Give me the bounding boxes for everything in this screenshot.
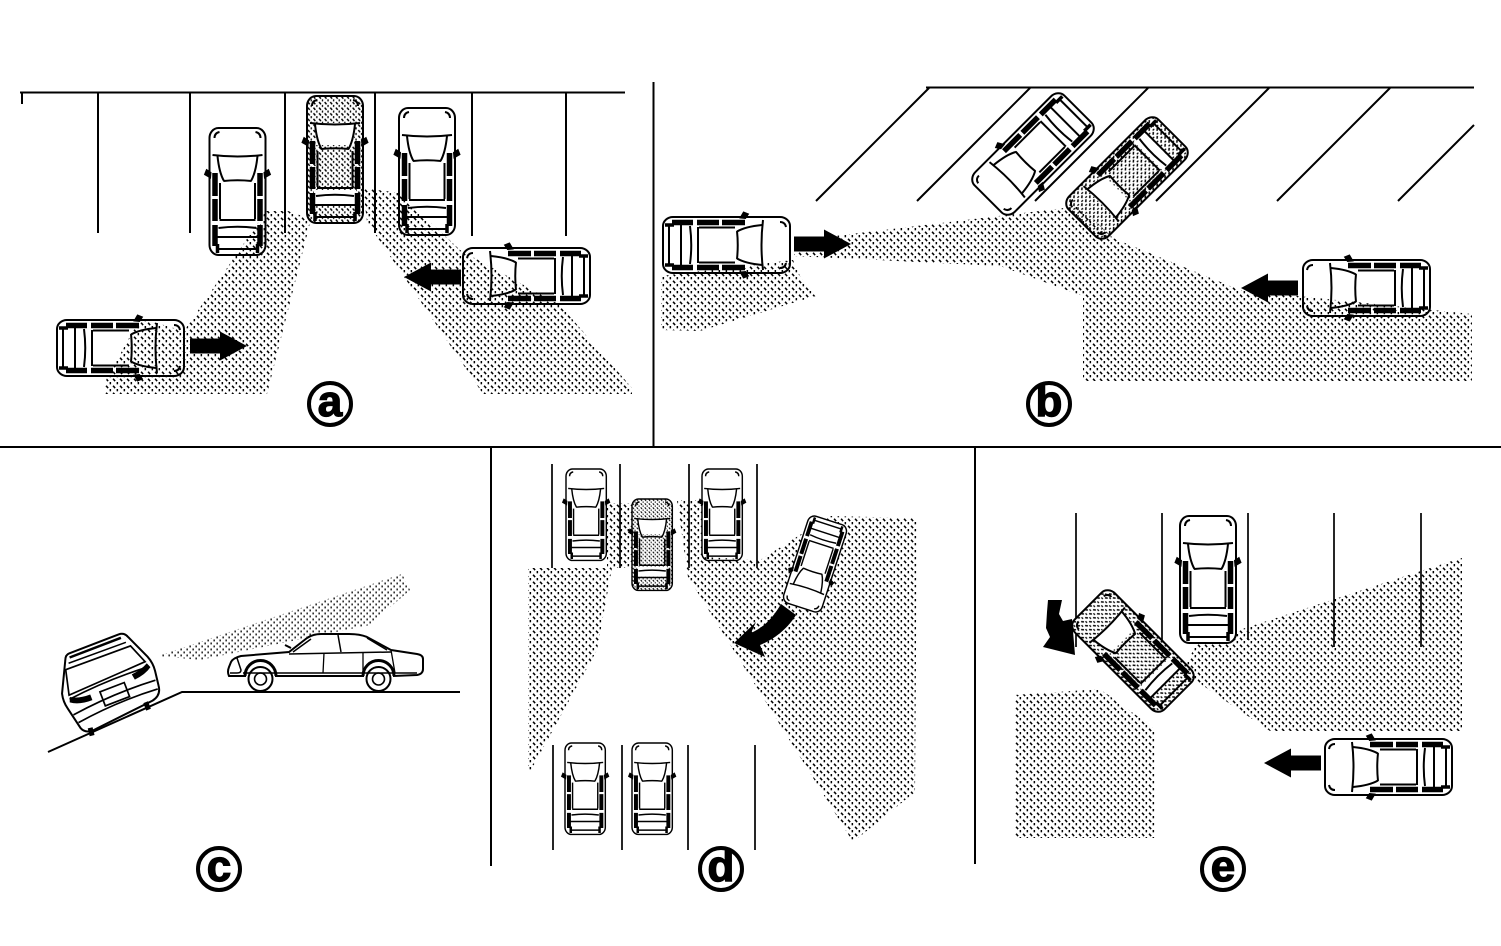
svg-text:d: d [708,842,735,891]
svg-text:c: c [207,842,231,891]
svg-text:b: b [1036,377,1063,426]
svg-text:a: a [318,377,343,426]
svg-text:e: e [1211,842,1235,891]
